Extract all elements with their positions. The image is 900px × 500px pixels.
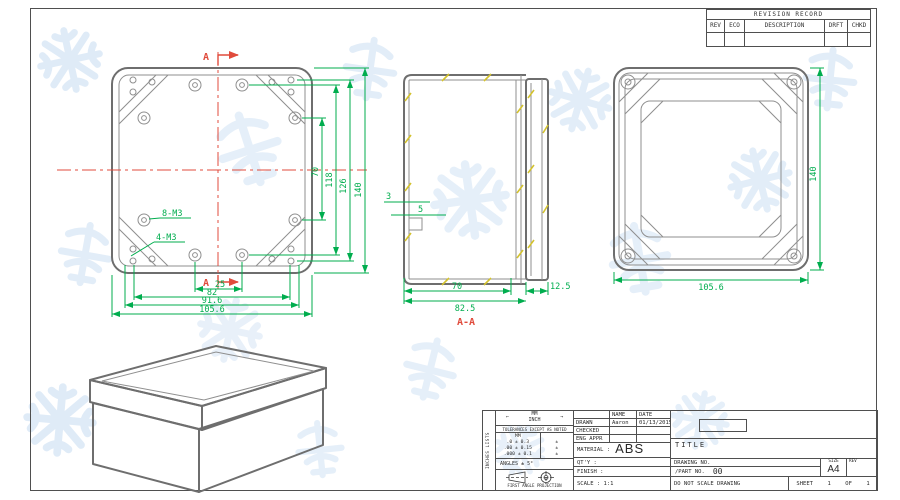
revision-cell — [825, 33, 848, 47]
finish-label: FINISH : — [577, 469, 604, 475]
dim-section-3: 3 — [386, 192, 391, 202]
checked-date — [637, 427, 670, 434]
size-value: A4 — [821, 464, 846, 475]
drawn-date: 01/13/2015 — [637, 419, 670, 426]
rev-header: REV — [847, 459, 877, 476]
title-block-side-strip: INCHES LISTS — [483, 411, 496, 490]
arrow-left-icon: ← — [506, 415, 509, 421]
side-note: INCHES LISTS — [487, 432, 492, 469]
arrow-right-icon: → — [560, 415, 563, 421]
lid-seal-groove — [625, 79, 797, 259]
section-label: A-A — [457, 317, 475, 328]
section-body-outline — [404, 75, 526, 284]
qty-label: QT'Y : — [577, 460, 597, 466]
revision-cell — [745, 33, 825, 47]
drawing-sheet: { "revision": { "title": "REVISION RECOR… — [0, 0, 900, 500]
dim-front-126: 126 — [339, 178, 349, 193]
dim-section-12-5: 12.5 — [550, 282, 570, 292]
blank-cell — [574, 411, 610, 418]
lid-face-chamfers — [641, 101, 781, 237]
iso-lid-front — [90, 380, 202, 430]
tolerance-heading: TOLERANCES EXCEPT AS NOTED — [496, 426, 573, 434]
lid-corner-screws — [621, 75, 801, 263]
dim-lid-140: 140 — [809, 166, 819, 181]
iso-top-face — [90, 346, 326, 406]
title-block: INCHES LISTS ← MM INCH → TOLERANCES EXCE… — [482, 410, 878, 491]
dim-front-105-6: 105.6 — [199, 305, 225, 315]
of-label: OF — [845, 481, 852, 487]
tolerance-block: ← MM INCH → TOLERANCES EXCEPT AS NOTED M… — [496, 411, 574, 490]
name-header: NAME — [610, 411, 637, 418]
lid-view: 140 105.6 — [614, 68, 824, 293]
part-no-label: /PART NO. — [675, 469, 705, 475]
section-arrow-top — [218, 55, 238, 65]
isometric-view — [90, 346, 326, 492]
drawing-no-label: DRAWING NO. — [671, 459, 820, 467]
section-lid-walls — [531, 79, 542, 280]
scale-label: SCALE : 1:1 — [577, 481, 613, 487]
lid-outline — [614, 68, 808, 270]
revision-col-description: DESCRIPTION — [745, 20, 825, 33]
date-header: DATE — [637, 411, 670, 418]
checked-name — [610, 427, 637, 434]
sheet-label: SHEET — [796, 481, 813, 487]
revision-cell — [725, 33, 745, 47]
tolerance-values: MM .0 ± 0.3 .00 ± 0.15 .000 ± 0.1 ± ± ± — [496, 433, 573, 459]
title-label: TITLE — [671, 438, 877, 458]
label-8m3: 8-M3 — [162, 209, 182, 219]
units-row: ← MM INCH → — [496, 411, 573, 426]
section-marker-top: A — [203, 52, 209, 63]
approval-block: NAME DATE DRAWN Aaron 01/13/2015 CHECKED… — [574, 411, 671, 490]
label-4m3: 4-M3 — [156, 233, 176, 243]
dim-front-70: 70 — [311, 167, 321, 177]
dim-section-70: 70 — [452, 282, 462, 292]
lid-face — [641, 101, 781, 237]
dim-front-140: 140 — [354, 182, 364, 197]
revision-col-eco: ECO — [725, 20, 745, 33]
iso-lid-side — [202, 368, 326, 430]
section-view: 3 5 70 12.5 82.5 A-A — [384, 74, 570, 328]
revision-col-drft: DRFT — [825, 20, 848, 33]
section-step-detail — [409, 218, 422, 230]
revision-cell — [707, 33, 725, 47]
checked-label: CHECKED — [574, 427, 610, 434]
title-drawing-block: TITLE DRAWING NO. /PART NO. 00 SIZE A4 R… — [671, 411, 877, 490]
units-inch: INCH — [528, 418, 540, 424]
dim-lid-105-6: 105.6 — [698, 283, 724, 293]
revision-table: REVISION RECORD REV ECO DESCRIPTION DRFT… — [706, 9, 871, 47]
projection-label: FIRST ANGLE PROJECTION — [507, 484, 561, 489]
front-view: A A 8-M3 4-M3 70 118 126 140 25 82 91.6 … — [57, 52, 369, 317]
material-value: ABS — [615, 442, 644, 457]
tol-inch-3: ± — [541, 452, 573, 458]
projection-row: FIRST ANGLE PROJECTION — [496, 470, 573, 490]
of-number: 1 — [866, 481, 869, 487]
section-lid — [526, 79, 548, 280]
sheet-number: 1 — [827, 481, 830, 487]
logo-area — [671, 411, 877, 438]
iso-body-side — [199, 389, 323, 492]
revision-col-chkd: CHKD — [848, 20, 871, 33]
section-walls — [409, 75, 526, 284]
eng-appr-label: ENG APPR — [574, 435, 610, 442]
revision-col-rev: REV — [707, 20, 725, 33]
sheet-info: SHEET 1 OF 1 — [789, 477, 877, 490]
dim-section-82-5: 82.5 — [455, 304, 475, 314]
drawn-label: DRAWN — [574, 419, 610, 426]
revision-title: REVISION RECORD — [707, 10, 871, 20]
part-no-value: 00 — [713, 467, 723, 476]
angles-tolerance: ANGLES ± 5° — [496, 459, 573, 470]
dim-front-118: 118 — [325, 172, 335, 187]
dim-section-5: 5 — [418, 205, 423, 215]
do-not-scale-note: DO NOT SCALE DRAWING — [671, 477, 789, 490]
drawn-name: Aaron — [610, 419, 637, 426]
logo-placeholder — [699, 419, 747, 432]
material-label: MATERIAL : — [577, 447, 610, 453]
tol-row-3: .000 ± 0.1 — [496, 452, 540, 458]
revision-cell — [848, 33, 871, 47]
